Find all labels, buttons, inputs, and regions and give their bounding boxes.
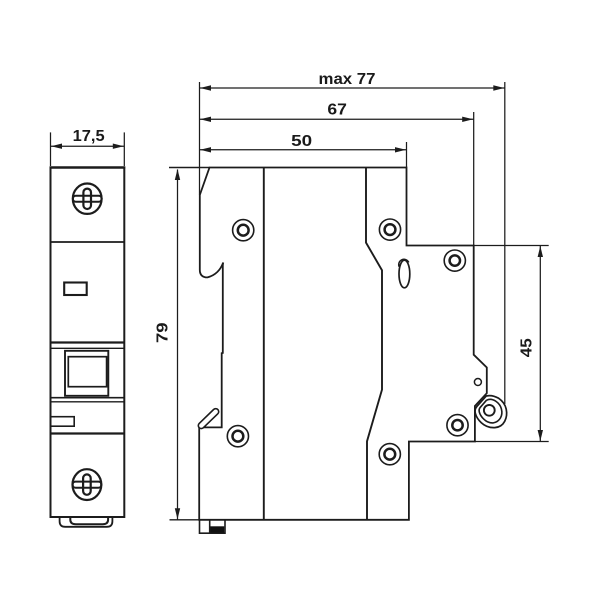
svg-text:45: 45 <box>518 338 535 357</box>
svg-text:17,5: 17,5 <box>73 128 105 145</box>
svg-text:max 77: max 77 <box>319 71 376 88</box>
svg-text:79: 79 <box>154 322 171 343</box>
svg-text:50: 50 <box>291 133 312 150</box>
svg-text:67: 67 <box>327 102 347 119</box>
